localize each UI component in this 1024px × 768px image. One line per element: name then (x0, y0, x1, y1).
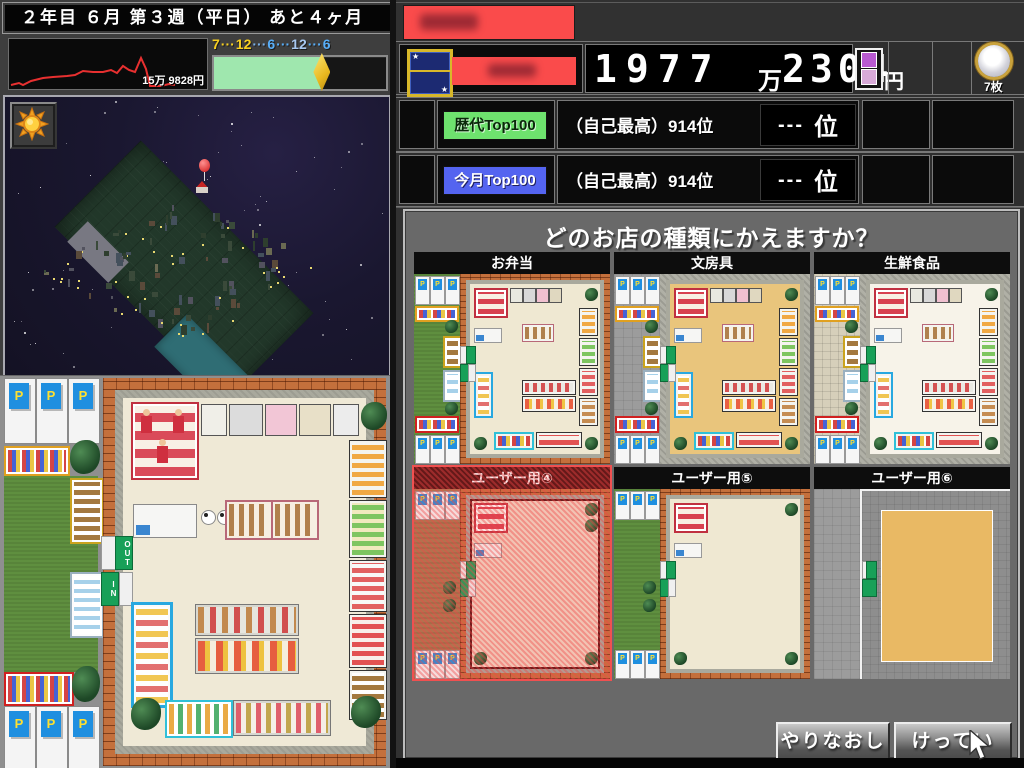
parking-sign: P (448, 279, 457, 290)
time-progress-fill (214, 57, 322, 89)
bottom-shelf (233, 700, 331, 736)
parking-sign: P (648, 494, 657, 505)
door-panel (119, 572, 133, 606)
gondola-shelf (225, 500, 273, 540)
store-tile-3[interactable]: 生鮮食品PPPPPP (814, 252, 1010, 464)
dialog-title: どのお店の種類にかえますか？ (405, 219, 1018, 253)
game-screen: ２年目 ６月 第３週（平日） あと４ヶ月 15万 9828円 7···12···… (0, 0, 1024, 768)
parking-stall: P (630, 491, 645, 520)
parking-stall: P (615, 491, 630, 520)
gondola-shelf (271, 500, 319, 540)
store-tile-label: 生鮮食品 (814, 252, 1010, 274)
parking-sign: P (418, 279, 427, 290)
parking-stall: P (630, 276, 645, 305)
parking-sign: P (818, 438, 827, 449)
ranking-row-alltime: 歴代Top100 （自己最高）914位 ---位 (396, 97, 1024, 152)
parking-sign: P (433, 438, 442, 449)
parking-sign: P (618, 438, 627, 449)
appliance (201, 404, 227, 436)
player-cell: ★★ (399, 44, 583, 93)
sales-chart-label: 15万 9828円 (142, 72, 204, 88)
clock-tick: 12 (291, 36, 307, 52)
city-minimap[interactable] (3, 95, 391, 377)
parking-stall: P (430, 491, 445, 520)
wall-shelf (349, 614, 387, 668)
store-tile-label: ユーザー用⑥ (814, 467, 1010, 489)
parking-sign: P (818, 279, 827, 290)
store-tile-preview: PPPPPP (614, 489, 810, 679)
in-sign: IN (101, 572, 119, 606)
parking-stall: P (815, 276, 830, 305)
staff-figure (157, 446, 168, 463)
monthly-rank-box: ---位 (760, 159, 856, 201)
parking-stall: P (68, 378, 100, 444)
parking-stall: P (430, 650, 445, 679)
parking-stall: P (645, 491, 660, 520)
store-tile-preview: PPPPPP (414, 489, 610, 679)
parking-sign: P (633, 279, 642, 290)
parking-sign: P (618, 279, 627, 290)
plant (351, 696, 381, 728)
clock-tick: 12 (236, 36, 252, 52)
out-sign: OUT (115, 536, 133, 570)
parking-sign: P (418, 653, 427, 664)
alltime-top100-badge[interactable]: 歴代Top100 (443, 111, 547, 140)
wall-shelf (349, 560, 387, 612)
status-panel: ★★ 1977 万 2304 円 7枚 歴代Top100 (396, 0, 1024, 768)
parking-sign: P (848, 279, 857, 290)
parking-sign: P (433, 279, 442, 290)
store-tile-4[interactable]: ユーザー用④PPPPPP (414, 467, 610, 679)
vending-machine (70, 572, 104, 638)
clock-tick: ··· (252, 36, 266, 52)
plant (361, 402, 387, 430)
clock-tick: 6 (267, 36, 275, 52)
clock-tick: 7 (212, 36, 220, 52)
parking-stall: P (615, 650, 630, 679)
store-tile-label: ユーザー用⑤ (614, 467, 810, 489)
clock-tick: ··· (276, 36, 290, 52)
parking-stall: P (445, 276, 460, 305)
parking-sign: P (833, 279, 842, 290)
register-desk (133, 504, 197, 538)
parking-stall: P (4, 378, 36, 444)
parking-sign: P (448, 653, 457, 664)
alltime-self-best: （自己最高）914位 (566, 112, 713, 137)
parking-sign: P (618, 494, 627, 505)
atm-machine (265, 404, 297, 436)
parking-stall: P (68, 706, 100, 768)
date-header: ２年目 ６月 第３週（平日） あと４ヶ月 (2, 2, 402, 34)
parking-sign: P (448, 494, 457, 505)
team-flag-icon: ★★ (407, 49, 453, 97)
outdoor-shelf (4, 446, 70, 476)
bottom-shelf (165, 700, 233, 738)
time-progress-bar (212, 55, 388, 91)
store-tile-2[interactable]: 文房具PPPPPP (614, 252, 810, 464)
money-yen-unit: 円 (884, 65, 904, 94)
parking-sign: P (9, 383, 29, 409)
store-tile-1[interactable]: お弁当PPPPPP (414, 252, 610, 464)
shop-marker (196, 187, 208, 193)
store-building: OUT IN (103, 378, 386, 766)
gondola-shelf (195, 638, 299, 674)
parking-stall: P (615, 276, 630, 305)
parking-sign: P (633, 494, 642, 505)
parking-stall: P (36, 706, 68, 768)
parking-stall: P (415, 491, 430, 520)
staff-figure (173, 416, 184, 433)
copier (229, 404, 263, 436)
parking-stall: P (430, 435, 445, 464)
plant (70, 440, 100, 474)
plant (72, 666, 100, 702)
parking-stall: P (445, 491, 460, 520)
player-name-banner (403, 5, 575, 40)
fax-machine (299, 404, 331, 436)
parking-stall: P (36, 378, 68, 444)
freezer-case (131, 602, 173, 708)
store-tile-label: お弁当 (414, 252, 610, 274)
store-tile-preview (814, 489, 1010, 679)
parking-stall: P (445, 650, 460, 679)
parking-stall: P (615, 435, 630, 464)
parking-sign: P (633, 653, 642, 664)
parking-sign: P (648, 279, 657, 290)
store-tile-preview: PPPPPP (814, 274, 1010, 464)
money-display: 1977 万 2304 円 (585, 44, 853, 93)
parking-sign: P (633, 438, 642, 449)
gondola-shelf (195, 604, 299, 636)
store-tile-5[interactable]: ユーザー用⑤PPPPPP (614, 467, 810, 679)
parking-sign: P (433, 494, 442, 505)
sun-icon (15, 107, 49, 141)
redo-button[interactable]: やりなおし (776, 722, 890, 763)
parking-stall: P (4, 706, 36, 768)
parking-stall: P (630, 650, 645, 679)
wall-shelf (349, 440, 387, 498)
monthly-self-best: （自己最高）914位 (566, 167, 713, 192)
parking-stall: P (645, 276, 660, 305)
wall-shelf (349, 500, 387, 558)
parking-stall: P (445, 435, 460, 464)
parking-sign: P (648, 438, 657, 449)
vending-machine (70, 478, 104, 544)
medal-coin-icon (978, 45, 1010, 77)
store-tile-preview: PPPPPP (414, 274, 610, 464)
clock-tick: ··· (308, 36, 322, 52)
parking-stall: P (845, 435, 860, 464)
alltime-rank-box: ---位 (760, 104, 856, 146)
money-man-unit: 万 (758, 61, 782, 96)
sun-button[interactable] (10, 102, 57, 149)
checkout-counter (131, 402, 199, 480)
parking-sign: P (418, 494, 427, 505)
parking-stall: P (630, 435, 645, 464)
balloon-marker-icon (199, 159, 210, 172)
cat-figure (201, 510, 216, 525)
parking-sign: P (618, 653, 627, 664)
confirm-button[interactable]: けってい (894, 722, 1012, 763)
parking-stall: P (845, 276, 860, 305)
clock-scale: 7···12···6···12···6 (212, 36, 388, 53)
left-panel: ２年目 ６月 第３週（平日） あと４ヶ月 15万 9828円 7···12···… (0, 0, 390, 768)
store-tile-label: 文房具 (614, 252, 810, 274)
store-tile-6[interactable]: ユーザー用⑥ (814, 467, 1010, 679)
parking-stall: P (815, 435, 830, 464)
store-map[interactable]: P P P P P P (0, 375, 390, 768)
monthly-top100-badge[interactable]: 今月Top100 (443, 166, 547, 195)
bottom-strip (396, 758, 1024, 768)
parking-sign: P (833, 438, 842, 449)
parking-sign: P (433, 653, 442, 664)
parking-stall: P (415, 650, 430, 679)
store-tile-preview: PPPPPP (614, 274, 810, 464)
player-name-bar (452, 57, 576, 85)
ranking-row-monthly: 今月Top100 （自己最高）914位 ---位 (396, 152, 1024, 207)
clock-tick: 6 (323, 36, 331, 52)
sales-chart: 15万 9828円 (8, 38, 208, 90)
parking-sign: P (448, 438, 457, 449)
store-tile-label: ユーザー用④ (414, 467, 610, 489)
money-man-digits: 1977 (594, 47, 722, 91)
clock-tick: ··· (221, 36, 235, 52)
parking-stall: P (645, 650, 660, 679)
outdoor-shelf (4, 672, 74, 706)
parking-stall: P (830, 435, 845, 464)
parking-sign: P (418, 438, 427, 449)
parking-sign: P (648, 653, 657, 664)
parking-stall: P (830, 276, 845, 305)
parking-stall: P (430, 276, 445, 305)
item-purse-icon[interactable] (855, 48, 883, 90)
parking-stall: P (645, 435, 660, 464)
terminal (333, 404, 359, 436)
coin-count: 7枚 (984, 78, 1003, 95)
store-type-dialog: どのお店の種類にかえますか？ お弁当PPPPPP文房具PPPPPP生鮮食品PPP… (403, 209, 1020, 760)
parking-stall: P (415, 435, 430, 464)
money-row: ★★ 1977 万 2304 円 7枚 (396, 41, 1024, 95)
parking-sign: P (848, 438, 857, 449)
parking-stall: P (415, 276, 430, 305)
staff-figure (141, 416, 152, 433)
